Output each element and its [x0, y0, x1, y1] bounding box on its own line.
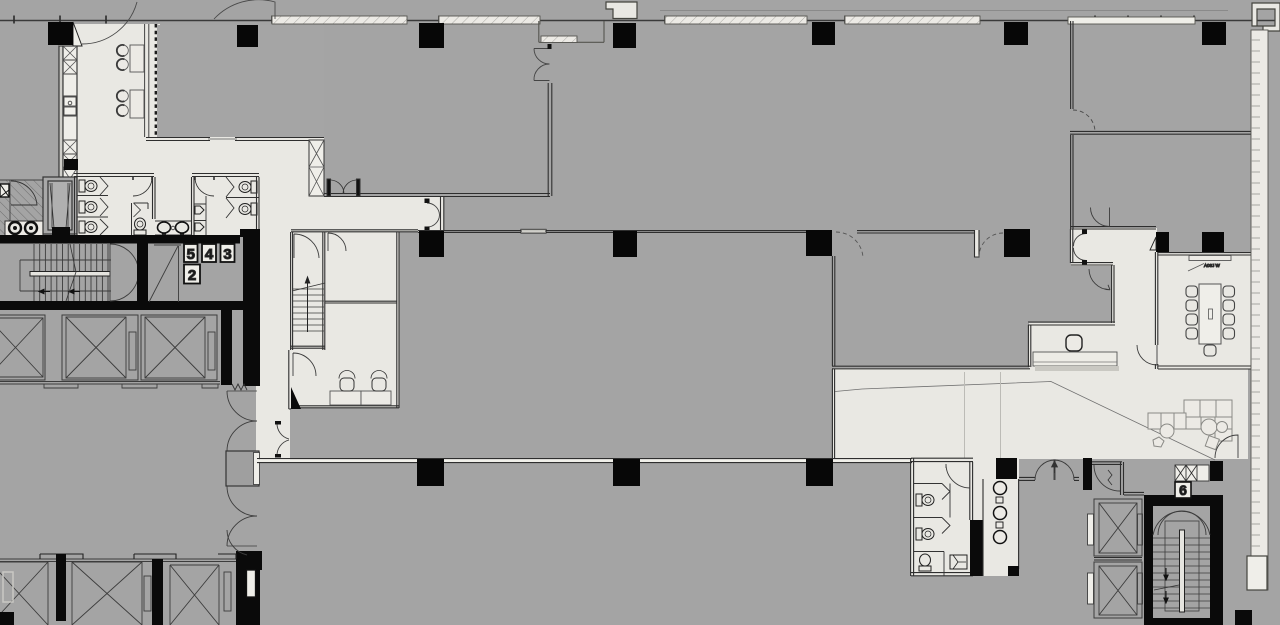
svg-text:6: 6	[1179, 482, 1187, 498]
svg-text:4: 4	[205, 246, 214, 263]
svg-text:2: 2	[188, 267, 196, 284]
svg-text:5: 5	[187, 246, 195, 263]
svg-text:3: 3	[223, 246, 231, 263]
svg-text:A06J W: A06J W	[1204, 263, 1221, 268]
